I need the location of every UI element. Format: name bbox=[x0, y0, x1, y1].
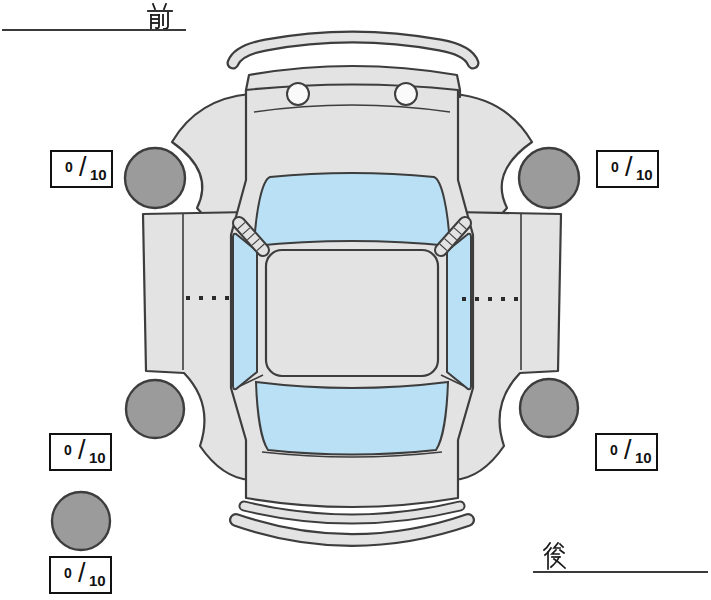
right-side-window bbox=[447, 234, 471, 389]
score-max: 10 bbox=[90, 166, 107, 183]
score-max: 10 bbox=[635, 449, 652, 466]
front-kanji-glyph bbox=[147, 3, 173, 30]
rear-left-tread-score: 0 / 10 bbox=[49, 433, 112, 471]
left-side-window bbox=[233, 234, 257, 389]
front-right-tire bbox=[519, 148, 579, 208]
rear-right-tire bbox=[520, 379, 578, 437]
score-value: 0 bbox=[610, 442, 618, 458]
rear-label bbox=[543, 542, 569, 570]
front-underline bbox=[2, 29, 186, 31]
roof-panel bbox=[266, 250, 438, 376]
score-separator: / bbox=[78, 558, 86, 589]
front-label bbox=[147, 3, 173, 30]
rear-window-glass bbox=[256, 382, 448, 455]
score-max: 10 bbox=[89, 449, 106, 466]
score-value: 0 bbox=[64, 565, 72, 581]
front-left-tread-score: 0 / 10 bbox=[50, 150, 113, 188]
score-separator: / bbox=[624, 435, 632, 466]
front-left-tire bbox=[125, 148, 185, 208]
score-max: 10 bbox=[636, 166, 653, 183]
score-value: 0 bbox=[611, 159, 619, 175]
windshield-glass bbox=[254, 173, 450, 246]
front-right-tread-score: 0 / 10 bbox=[596, 150, 659, 188]
rear-bumper bbox=[236, 506, 468, 540]
tire-condition-diagram: 0 / 10 0 / 10 0 / 10 0 / 10 0 / 10 bbox=[0, 0, 711, 600]
score-separator: / bbox=[78, 435, 86, 466]
spare-tread-score: 0 / 10 bbox=[49, 556, 112, 594]
rear-kanji-glyph bbox=[543, 542, 569, 570]
score-max: 10 bbox=[89, 572, 106, 589]
rear-right-tread-score: 0 / 10 bbox=[595, 433, 658, 471]
left-headlight bbox=[287, 83, 309, 105]
rear-underline bbox=[533, 571, 708, 573]
right-headlight bbox=[395, 83, 417, 105]
score-separator: / bbox=[79, 152, 87, 183]
rear-left-tire bbox=[126, 380, 184, 438]
score-value: 0 bbox=[65, 159, 73, 175]
spare-tire bbox=[52, 492, 110, 550]
car-top-view-illustration bbox=[0, 0, 711, 600]
score-value: 0 bbox=[64, 442, 72, 458]
score-separator: / bbox=[625, 152, 633, 183]
